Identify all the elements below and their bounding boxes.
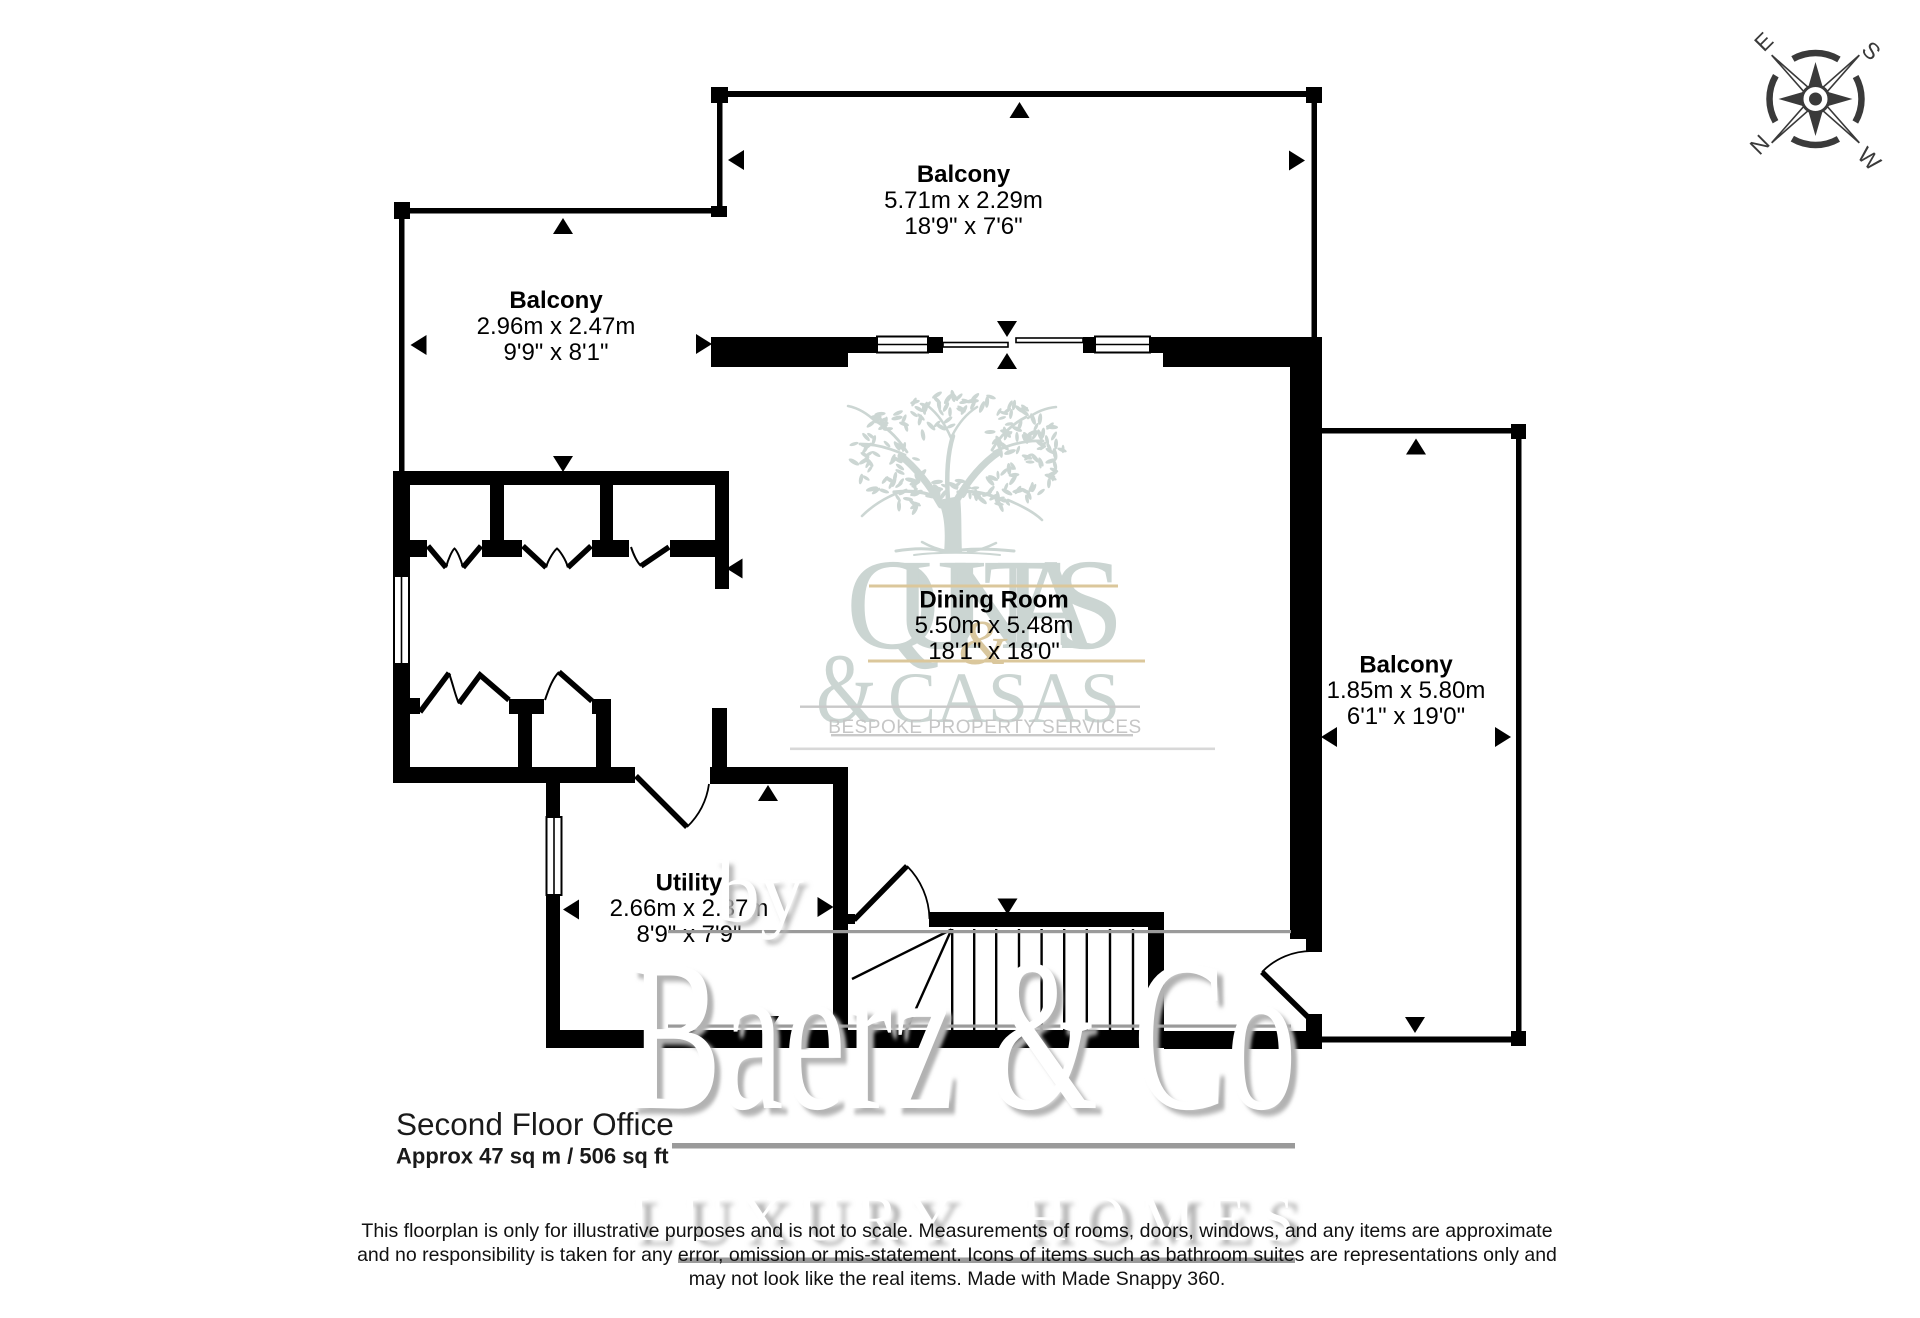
svg-text:Balcony: Balcony [509, 287, 603, 314]
svg-text:S: S [1857, 36, 1886, 65]
svg-text:N: N [1745, 130, 1775, 160]
svg-text:Utility: Utility [656, 869, 723, 896]
svg-text:Dining Room: Dining Room [919, 586, 1068, 613]
svg-text:18'9" x 7'6": 18'9" x 7'6" [904, 213, 1022, 240]
svg-text:This floorplan is only for ill: This floorplan is only for illustrative … [361, 1220, 1552, 1242]
svg-text:18'1" x 18'0": 18'1" x 18'0" [928, 638, 1060, 665]
svg-text:5.71m x 2.29m: 5.71m x 2.29m [884, 187, 1043, 214]
svg-text:W: W [1852, 142, 1886, 176]
svg-text:Baerz & Co: Baerz & Co [628, 915, 1296, 1155]
svg-text:1.85m x 5.80m: 1.85m x 5.80m [1327, 677, 1486, 704]
svg-text:6'1" x 19'0": 6'1" x 19'0" [1347, 703, 1465, 730]
svg-text:5.50m x 5.48m: 5.50m x 5.48m [915, 612, 1074, 639]
svg-text:and no responsibility is taken: and no responsibility is taken for any e… [357, 1244, 1557, 1266]
svg-text:BESPOKE PROPERTY SERVICES: BESPOKE PROPERTY SERVICES [828, 717, 1141, 738]
svg-text:may not look like the real ite: may not look like the real items. Made w… [689, 1268, 1226, 1290]
svg-text:E: E [1749, 27, 1778, 56]
svg-text:Balcony: Balcony [1359, 651, 1453, 678]
svg-text:9'9" x 8'1": 9'9" x 8'1" [504, 339, 609, 366]
svg-text:2.96m x 2.47m: 2.96m x 2.47m [477, 313, 636, 340]
svg-text:Balcony: Balcony [917, 161, 1011, 188]
